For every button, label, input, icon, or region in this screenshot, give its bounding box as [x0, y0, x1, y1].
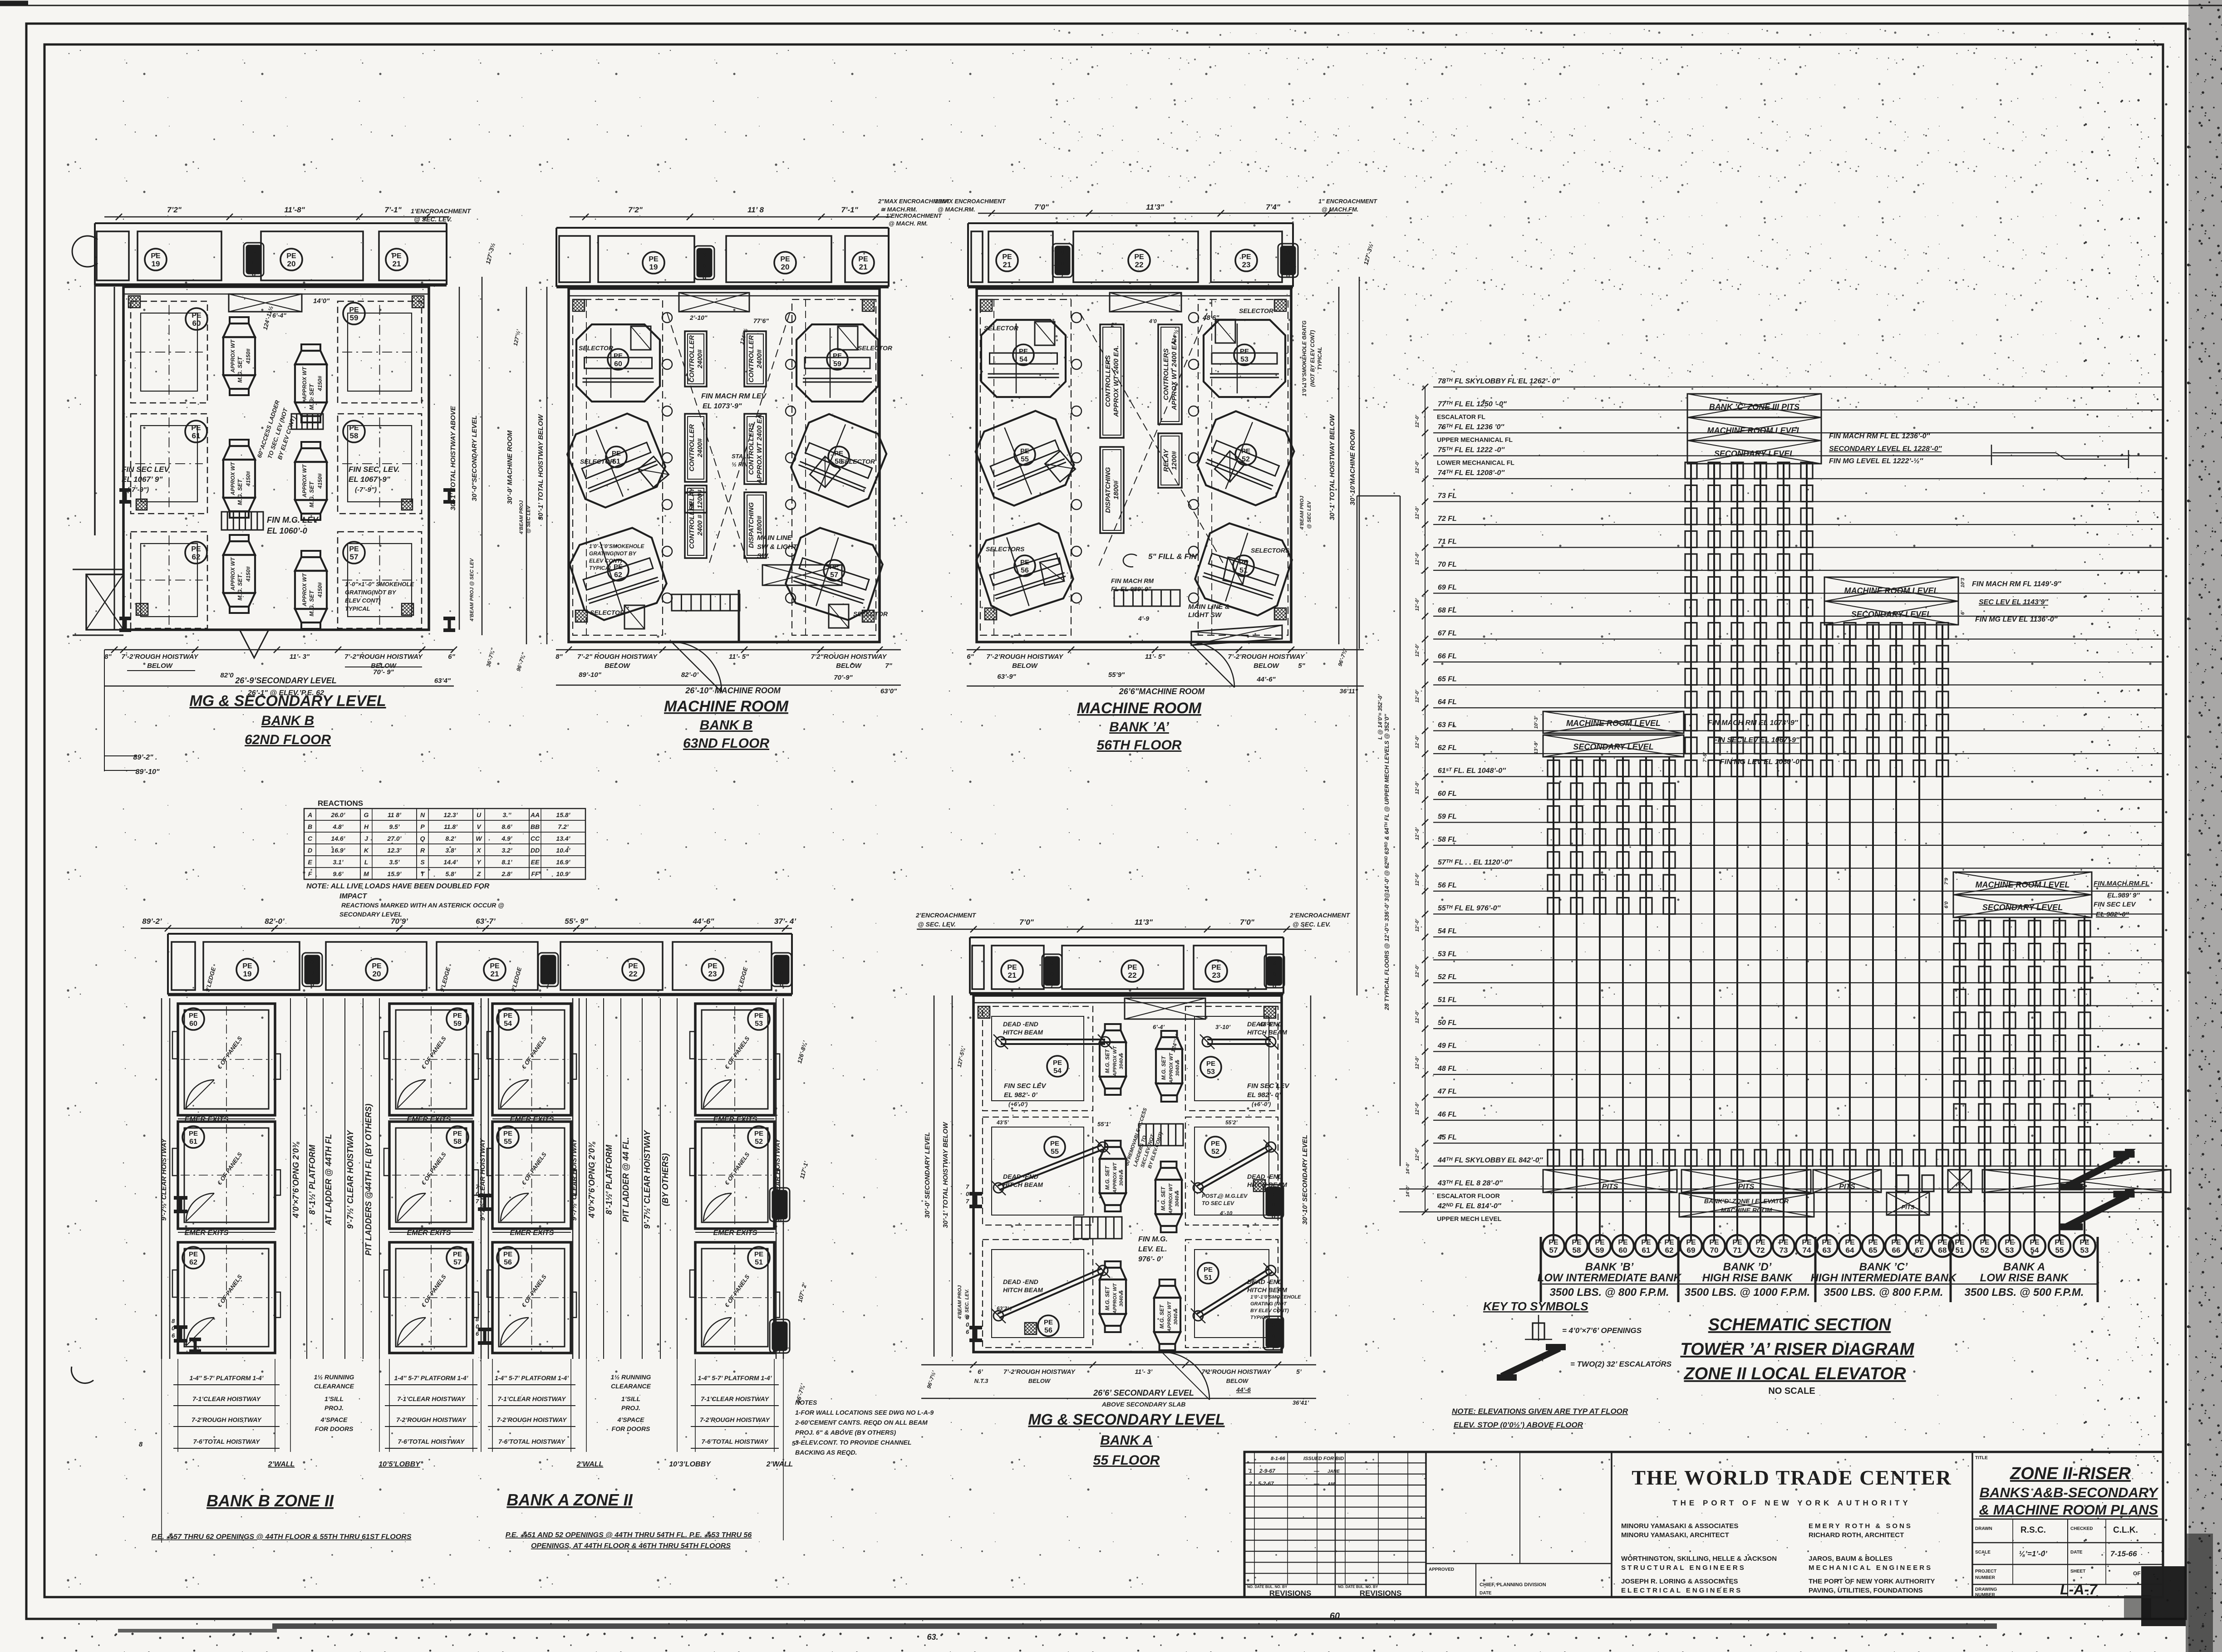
svg-text:PE: PE	[1868, 1239, 1878, 1246]
svg-text:1½ RUNNING: 1½ RUNNING	[314, 1373, 354, 1381]
svg-text:FIN MG LEVEL EL 1222’-½″: FIN MG LEVEL EL 1222’-½″	[1829, 457, 1923, 465]
svg-text:SELECTOR: SELECTOR	[858, 344, 893, 352]
svg-text:⅛’=1’-0’: ⅛’=1’-0’	[2019, 1549, 2047, 1558]
svg-text:EMER EXITS: EMER EXITS	[510, 1116, 554, 1123]
svg-text:PE: PE	[1020, 559, 1029, 566]
svg-text:DRAWING: DRAWING	[1975, 1587, 1997, 1592]
svg-text:4’-10: 4’-10	[1219, 1210, 1233, 1216]
svg-text:PE: PE	[1955, 1239, 1965, 1246]
svg-text:PE: PE	[191, 545, 201, 553]
svg-text:44ᵀᴴ FL SKYLOBBY EL 842’-0″: 44ᵀᴴ FL SKYLOBBY EL 842’-0″	[1437, 1157, 1544, 1164]
svg-text:68: 68	[1938, 1246, 1947, 1255]
svg-text:6’-4’: 6’-4’	[1153, 1024, 1165, 1030]
svg-text:PE: PE	[780, 255, 790, 263]
svg-text:HITCH BEAM: HITCH BEAM	[1003, 1286, 1043, 1294]
svg-text:7’-1": 7’-1"	[384, 206, 402, 214]
svg-text:55: 55	[504, 1138, 512, 1146]
svg-text:59: 59	[833, 360, 841, 368]
svg-text:73: 73	[1780, 1246, 1788, 1255]
svg-text:7-6’TOTAL HOISTWAY: 7-6’TOTAL HOISTWAY	[498, 1438, 565, 1445]
svg-text:PE: PE	[1618, 1239, 1628, 1246]
svg-text:4150#: 4150#	[245, 566, 251, 582]
svg-text:7’0": 7’0"	[1034, 203, 1049, 211]
svg-text:FIN MACH RM FL 1149’-9″: FIN MACH RM FL 1149’-9″	[1972, 580, 2062, 588]
svg-text:AT LADDER @ 44TH FL: AT LADDER @ 44TH FL	[324, 1134, 333, 1226]
svg-text:DISPATCHING: DISPATCHING	[1104, 467, 1112, 513]
svg-text:BANK A ZONE II: BANK A ZONE II	[506, 1490, 633, 1509]
svg-text:22: 22	[629, 970, 638, 978]
svg-text:65: 65	[1869, 1246, 1878, 1255]
svg-text:3.5’: 3.5’	[389, 858, 400, 866]
svg-text:7: 7	[1272, 1190, 1275, 1197]
svg-text:7’9: 7’9	[1944, 877, 1949, 885]
svg-text:SECONDARY LEVEL: SECONDARY LEVEL	[1573, 742, 1653, 751]
svg-text:56: 56	[1044, 1327, 1052, 1334]
svg-text:FIN MACH RM: FIN MACH RM	[1111, 577, 1154, 584]
svg-text:DEAD -END: DEAD -END	[1003, 1173, 1038, 1180]
svg-text:11’- 5": 11’- 5"	[1145, 653, 1165, 661]
svg-text:7-6’TOTAL HOISTWAY: 7-6’TOTAL HOISTWAY	[193, 1438, 261, 1445]
svg-text:W: W	[476, 835, 482, 842]
svg-text:52: 52	[755, 1138, 763, 1146]
svg-text:TO SEC LEV: TO SEC LEV	[1202, 1200, 1234, 1206]
svg-text:4’0’×7’6’OPNG 2’0⅜: 4’0’×7’6’OPNG 2’0⅜	[291, 1142, 300, 1219]
svg-text:64 FL: 64 FL	[1438, 698, 1457, 706]
svg-text:6’: 6’	[978, 1368, 983, 1375]
svg-text:ELEV. STOP (0’0½’) ABOVE FL: ELEV. STOP (0’0½’) ABOVE FLOOR	[1454, 1421, 1583, 1429]
svg-text:APPROX WT: APPROX WT	[301, 573, 308, 607]
svg-text:2’ENCROACHMENT: 2’ENCROACHMENT	[915, 912, 977, 919]
svg-text:0: 0	[1050, 971, 1054, 978]
svg-text:—: —	[1313, 1480, 1320, 1487]
svg-text:9’-7½’ CLEAR HOISTWAY: 9’-7½’ CLEAR HOISTWAY	[643, 1129, 652, 1229]
svg-text:PITS: PITS	[1602, 1183, 1618, 1191]
svg-text:8: 8	[1272, 1321, 1275, 1329]
svg-text:12’-0’: 12’-0’	[1415, 643, 1420, 657]
svg-text:M.G. SET: M.G. SET	[1104, 1165, 1111, 1190]
svg-text:64: 64	[1846, 1246, 1854, 1255]
svg-text:EMER EXITS: EMER EXITS	[407, 1116, 451, 1123]
svg-text:DEAD -END: DEAD -END	[1247, 1020, 1283, 1028]
svg-text:C.L.K.: C.L.K.	[2113, 1525, 2138, 1535]
svg-text:48 FL: 48 FL	[1437, 1065, 1457, 1073]
svg-text:SELECTOR: SELECTOR	[580, 458, 615, 465]
svg-text:68 FL: 68 FL	[1438, 607, 1457, 614]
svg-text:LOW INTERMEDIATE BANK: LOW INTERMEDIATE BANK	[1538, 1272, 1682, 1284]
svg-text:8.1’: 8.1’	[501, 858, 512, 866]
svg-text:7-6’TOTAL HOISTWAY: 7-6’TOTAL HOISTWAY	[702, 1438, 769, 1445]
svg-text:FIN SEC LEV: FIN SEC LEV	[122, 465, 170, 474]
svg-text:62ND FLOOR: 62ND FLOOR	[245, 732, 331, 747]
svg-text:7: 7	[1061, 271, 1064, 279]
svg-text:KEY TO SYMBOLS: KEY TO SYMBOLS	[1483, 1299, 1588, 1313]
svg-text:7.2’: 7.2’	[558, 823, 569, 830]
svg-text:R.S.C.: R.S.C.	[2020, 1525, 2046, 1535]
svg-text:PE: PE	[189, 1250, 198, 1258]
svg-text:BELOW: BELOW	[1028, 1377, 1051, 1384]
svg-text:@ SEC. LEV.: @ SEC. LEV.	[414, 216, 452, 223]
svg-text:89’-10": 89’-10"	[136, 768, 160, 776]
svg-text:PE: PE	[614, 563, 623, 571]
svg-text:TYPICAL: TYPICAL	[589, 565, 612, 571]
svg-text:21: 21	[1003, 260, 1012, 269]
svg-text:& MACHINE ROOM PLANS: & MACHINE ROOM PLANS	[1979, 1502, 2158, 1518]
svg-text:FIN M.G.: FIN M.G.	[1138, 1235, 1168, 1243]
svg-text:14’-0’: 14’-0’	[1406, 1162, 1411, 1174]
svg-text:PE: PE	[612, 450, 621, 457]
svg-text:4150#: 4150#	[245, 348, 251, 364]
svg-text:BELOW: BELOW	[836, 662, 862, 670]
svg-text:EL 1073’-9": EL 1073’-9"	[703, 402, 742, 410]
svg-text:HITCH BEAM: HITCH BEAM	[1003, 1029, 1043, 1036]
svg-text:PIT LADDERS @44TH FL (BY OTHER: PIT LADDERS @44TH FL (BY OTHERS)	[364, 1104, 373, 1256]
svg-text:PE: PE	[2005, 1239, 2015, 1246]
svg-text:5": 5"	[1298, 662, 1305, 670]
svg-text:PE: PE	[1053, 1059, 1062, 1067]
svg-text:43ᵀᴴ FL EL 8 28’-0″: 43ᵀᴴ FL EL 8 28’-0″	[1437, 1180, 1503, 1187]
svg-text:36’11": 36’11"	[1340, 687, 1358, 695]
svg-text:N: N	[420, 811, 425, 819]
svg-text:82’-0’: 82’-0’	[265, 917, 285, 926]
svg-text:APPROX WT: APPROX WT	[301, 366, 308, 400]
svg-text:Z: Z	[477, 870, 481, 877]
svg-text:MAIN LINE &: MAIN LINE &	[1188, 603, 1230, 611]
svg-text:19: 19	[243, 970, 252, 978]
svg-text:CONTROLLERS: CONTROLLERS	[1162, 348, 1170, 400]
svg-text:HIGH RISE BANK: HIGH RISE BANK	[1702, 1272, 1793, 1284]
svg-text:59 FL: 59 FL	[1438, 813, 1457, 821]
svg-text:M.G. SET: M.G. SET	[1160, 1055, 1167, 1080]
svg-text:PE: PE	[1241, 447, 1250, 455]
svg-text:FIN SEC. LEV.: FIN SEC. LEV.	[349, 465, 400, 474]
svg-text:77ᵀᴴ FL EL 1250 ’-0″: 77ᵀᴴ FL EL 1250 ’-0″	[1438, 401, 1507, 408]
svg-text:7-1’CLEAR HOISTWAY: 7-1’CLEAR HOISTWAY	[192, 1395, 261, 1402]
svg-text:PE: PE	[189, 1130, 198, 1137]
svg-text:PE: PE	[1204, 1266, 1213, 1274]
svg-text:ZONE II LOCAL ELEVATOR: ZONE II LOCAL ELEVATOR	[1683, 1364, 1906, 1383]
svg-text:1200#: 1200#	[1170, 451, 1178, 470]
svg-text:60 FL: 60 FL	[1438, 790, 1457, 798]
svg-text:3040⁂: 3040⁂	[1174, 1190, 1180, 1206]
svg-text:PE: PE	[1914, 1239, 1924, 1246]
svg-text:53: 53	[1240, 356, 1249, 363]
svg-text:EL 982’-0″: EL 982’-0″	[2096, 911, 2129, 918]
svg-text:CC: CC	[531, 835, 540, 842]
svg-text:30’-1’ TOTAL HOISTWAY BELOW: 30’-1’ TOTAL HOISTWAY BELOW	[942, 1122, 949, 1228]
svg-text:0: 0	[778, 1336, 782, 1343]
svg-text:59: 59	[453, 1020, 462, 1028]
svg-text:22: 22	[1135, 260, 1144, 269]
svg-text:57: 57	[453, 1259, 462, 1266]
svg-text:AA: AA	[530, 811, 540, 819]
svg-text:7’-2’ROUGH HOISTWAY: 7’-2’ROUGH HOISTWAY	[1228, 653, 1306, 661]
svg-text:CONTROLLER: CONTROLLER	[688, 335, 696, 382]
svg-text:61ˢᵀ FL. EL 1048’-0″: 61ˢᵀ FL. EL 1048’-0″	[1438, 767, 1506, 775]
svg-text:63’-9": 63’-9"	[997, 673, 1016, 681]
svg-text:PE: PE	[392, 252, 402, 260]
svg-text:30’-1’ TOTAL HOISTWAY ABOVE: 30’-1’ TOTAL HOISTWAY ABOVE	[449, 406, 457, 510]
svg-text:EMER EXITS: EMER EXITS	[407, 1229, 451, 1237]
svg-text:7’2": 7’2"	[167, 206, 182, 214]
svg-text:4’BEAM PROJ: 4’BEAM PROJ	[519, 500, 524, 534]
svg-text:PE: PE	[1127, 964, 1137, 971]
svg-text:6: 6	[172, 1332, 175, 1339]
svg-text:49 FL: 49 FL	[1437, 1042, 1457, 1050]
svg-text:53: 53	[2080, 1246, 2089, 1255]
svg-text:BANK ’B’: BANK ’B’	[1585, 1261, 1634, 1273]
svg-text:30’-1’ TOTAL HOISTWAY BELOW: 30’-1’ TOTAL HOISTWAY BELOW	[1328, 414, 1336, 520]
svg-text:13.4’: 13.4’	[556, 835, 570, 842]
svg-text:G: G	[364, 811, 369, 819]
svg-text:1½ RUNNING: 1½ RUNNING	[611, 1373, 651, 1381]
svg-text:78ᵀᴴ FL SKYLOBBY FL EL 1262’: 78ᵀᴴ FL SKYLOBBY FL EL 1262’- 0″	[1438, 377, 1560, 385]
svg-text:72 FL: 72 FL	[1438, 515, 1457, 523]
svg-text:4150#: 4150#	[245, 471, 251, 487]
svg-text:27.0’: 27.0’	[387, 835, 402, 842]
svg-text:NO SCALE: NO SCALE	[1768, 1386, 1815, 1396]
svg-text:TYPICAL: TYPICAL	[1317, 347, 1323, 370]
svg-text:BANK B: BANK B	[261, 713, 315, 728]
svg-text:HITCH BEAM: HITCH BEAM	[1247, 1286, 1287, 1294]
svg-text:8.2’: 8.2’	[445, 835, 456, 842]
svg-text:26’6’ SECONDARY LEVEL: 26’6’ SECONDARY LEVEL	[1093, 1388, 1194, 1397]
svg-text:9’-7½’ CLEAR HOISTWAY: 9’-7½’ CLEAR HOISTWAY	[570, 1138, 578, 1221]
svg-text:1: 1	[1249, 1468, 1252, 1474]
svg-text:43’5’: 43’5’	[996, 1119, 1009, 1126]
svg-text:2400#: 2400#	[756, 349, 763, 368]
svg-text:CLEARANCE: CLEARANCE	[611, 1382, 651, 1390]
svg-text:CONTROLLERS: CONTROLLERS	[747, 423, 755, 475]
svg-text:PE: PE	[628, 962, 638, 970]
svg-text:12’-0’: 12’-0’	[1415, 964, 1420, 977]
svg-text:APPROX WT 2400 EA.: APPROX WT 2400 EA.	[1170, 338, 1178, 411]
svg-text:7-2’ROUGH HOISTWAY: 7-2’ROUGH HOISTWAY	[700, 1416, 770, 1423]
svg-text:16.9’: 16.9’	[331, 847, 345, 854]
svg-text:MACHINE ROOM LEVEL: MACHINE ROOM LEVEL	[1707, 426, 1801, 435]
svg-text:ABOVE SECONDARY SLAB: ABOVE SECONDARY SLAB	[1101, 1401, 1186, 1408]
svg-text:—: —	[1313, 1468, 1320, 1474]
svg-text:7-15-66: 7-15-66	[2110, 1549, 2137, 1558]
svg-text:2’ENCROACHMENT: 2’ENCROACHMENT	[1289, 912, 1351, 919]
svg-text:PE: PE	[1822, 1239, 1832, 1246]
svg-text:LIGHT SW: LIGHT SW	[1188, 611, 1222, 619]
svg-text:52: 52	[1981, 1246, 1989, 1255]
svg-text:53: 53	[755, 1020, 763, 1028]
svg-text:PE: PE	[708, 962, 718, 970]
svg-text:10.9’: 10.9’	[556, 870, 570, 877]
svg-text:1’0’-1’0’SMOKEHOLE: 1’0’-1’0’SMOKEHOLE	[589, 543, 644, 549]
svg-text:2400 #: 2400 #	[696, 515, 704, 536]
svg-text:BELOW: BELOW	[1012, 662, 1038, 670]
svg-text:PE: PE	[1891, 1239, 1901, 1246]
svg-text:CONTROLLER: CONTROLLER	[688, 424, 696, 471]
svg-text:11’3": 11’3"	[1135, 918, 1153, 926]
svg-text:PE: PE	[2030, 1239, 2040, 1246]
svg-text:13’-9’: 13’-9’	[1534, 741, 1539, 754]
svg-text:SELECTOR: SELECTOR	[841, 458, 875, 465]
svg-text:PROJECT: PROJECT	[1975, 1569, 1996, 1574]
svg-text:PE: PE	[1845, 1239, 1855, 1246]
svg-text:14.4’: 14.4’	[443, 858, 458, 866]
svg-text:12’-0’: 12’-0’	[1415, 781, 1420, 794]
svg-text:EE: EE	[531, 858, 540, 866]
svg-text:FIN SEC LEV: FIN SEC LEV	[1247, 1082, 1290, 1090]
svg-text:PE: PE	[1050, 1140, 1059, 1147]
svg-text:11.8’: 11.8’	[444, 823, 458, 830]
svg-text:BELOW: BELOW	[147, 662, 173, 670]
svg-text:58 FL: 58 FL	[1438, 836, 1457, 843]
svg-text:55’2’: 55’2’	[1225, 1119, 1238, 1126]
svg-text:SECONDARY LEVEL: SECONDARY LEVEL	[1714, 449, 1794, 458]
svg-text:0: 0	[252, 259, 256, 267]
svg-text:2’-10": 2’-10"	[689, 314, 708, 321]
svg-text:PE: PE	[1572, 1239, 1582, 1246]
svg-text:LEV. EL.: LEV. EL.	[1138, 1245, 1167, 1253]
svg-text:DATE: DATE	[1480, 1591, 1492, 1596]
svg-text:MAIN LINE: MAIN LINE	[757, 534, 792, 542]
svg-text:7: 7	[966, 1198, 969, 1205]
svg-text:APPROX WT 2400 EA: APPROX WT 2400 EA	[756, 414, 763, 484]
svg-text:7": 7"	[885, 662, 892, 670]
svg-text:SECONDARY LEVEL EL 1228’-0″: SECONDARY LEVEL EL 1228’-0″	[1829, 445, 1942, 453]
svg-text:APPROX WT: APPROX WT	[230, 461, 236, 495]
svg-text:1’ENCROACHMENT: 1’ENCROACHMENT	[886, 212, 942, 219]
svg-text:26.0’: 26.0’	[330, 811, 345, 819]
svg-text:1-4″ 5-7’ PLATFORM 1-4’: 1-4″ 5-7’ PLATFORM 1-4’	[394, 1374, 468, 1382]
svg-text:EMER EXITS: EMER EXITS	[713, 1229, 757, 1237]
svg-text:2’WALL: 2’WALL	[576, 1461, 604, 1468]
svg-text:3.2’: 3.2’	[501, 847, 512, 854]
svg-text:MG & SECONDARY LEVEL: MG & SECONDARY LEVEL	[189, 692, 386, 710]
svg-text:ESCALATOR FL: ESCALATOR FL	[1437, 413, 1485, 421]
svg-text:PE: PE	[1709, 1239, 1719, 1246]
svg-text:47 FL: 47 FL	[1437, 1088, 1457, 1096]
svg-text:APPROX WT: APPROX WT	[1112, 1045, 1118, 1077]
svg-text:6: 6	[1286, 249, 1290, 256]
svg-text:0: 0	[966, 1321, 969, 1328]
svg-text:SCALE: SCALE	[1975, 1550, 1991, 1555]
svg-text:PE: PE	[490, 962, 500, 970]
svg-text:PROJ.: PROJ.	[621, 1404, 640, 1412]
svg-text:M.G. SET: M.G. SET	[1104, 1286, 1111, 1310]
svg-text:12’-0’: 12’-0’	[1415, 1056, 1420, 1069]
svg-text:51: 51	[755, 1259, 763, 1266]
svg-text:M.G. SET: M.G. SET	[1160, 1186, 1166, 1211]
svg-text:7-1’CLEAR HOISTWAY: 7-1’CLEAR HOISTWAY	[701, 1395, 770, 1402]
svg-text:PE: PE	[349, 424, 359, 432]
svg-text:2’WALL: 2’WALL	[766, 1461, 793, 1468]
svg-text:42ᴺᴰ FL EL 814’-0″: 42ᴺᴰ FL EL 814’-0″	[1437, 1202, 1502, 1210]
svg-text:@ MACH.FM.: @ MACH.FM.	[1322, 206, 1358, 213]
svg-text:3500 LBS. @ 800 F.P.M.: 3500 LBS. @ 800 F.P.M.	[1824, 1286, 1943, 1299]
svg-text:7-2’ROUGH HOISTWAY: 7-2’ROUGH HOISTWAY	[497, 1416, 567, 1423]
svg-text:FIN SEC LEV: FIN SEC LEV	[1004, 1082, 1047, 1090]
svg-text:THE PORT OF NEW YORK AUTHORITY: THE PORT OF NEW YORK AUTHORITY	[1809, 1578, 1935, 1585]
svg-text:8: 8	[778, 1216, 782, 1223]
svg-text:BANK A: BANK A	[1100, 1433, 1153, 1448]
svg-text:DISPATCHING: DISPATCHING	[747, 502, 755, 548]
svg-text:36’41’: 36’41’	[1293, 1399, 1309, 1406]
svg-text:P.E. ⁂51 AND 52 OPENINGS @ 44: P.E. ⁂51 AND 52 OPENINGS @ 44TH THRU 54T…	[506, 1531, 752, 1539]
svg-text:3040⁂: 3040⁂	[1175, 1059, 1180, 1076]
svg-text:APPROX WT: APPROX WT	[301, 464, 308, 498]
svg-text:BELOW: BELOW	[1254, 662, 1280, 670]
svg-text:23: 23	[708, 970, 717, 978]
svg-text:21: 21	[393, 260, 401, 268]
svg-text:JAROS, BAUM & BOLLES: JAROS, BAUM & BOLLES	[1809, 1555, 1893, 1563]
svg-text:FL EL 989’-9": FL EL 989’-9"	[1111, 585, 1151, 593]
svg-text:PE: PE	[1211, 964, 1221, 971]
svg-text:8: 8	[139, 1441, 143, 1448]
svg-text:MACHINE ROOM: MACHINE ROOM	[1077, 700, 1202, 717]
svg-text:8: 8	[172, 1318, 175, 1324]
svg-text:3.8’: 3.8’	[445, 847, 456, 854]
svg-text:6: 6	[780, 958, 783, 966]
svg-text:0: 0	[476, 1323, 479, 1330]
svg-text:CHIEF, PLANNING DIVISION: CHIEF, PLANNING DIVISION	[1480, 1582, 1546, 1588]
svg-text:EL 1067’-9": EL 1067’-9"	[349, 475, 391, 484]
svg-text:6: 6	[966, 1328, 969, 1335]
svg-text:PE: PE	[1206, 1060, 1215, 1068]
svg-text:8’-1½’ PLATFORM: 8’-1½’ PLATFORM	[605, 1144, 614, 1215]
svg-text:PE: PE	[503, 1250, 512, 1258]
svg-text:52 FL: 52 FL	[1438, 973, 1457, 981]
svg-text:0: 0	[1272, 1333, 1275, 1340]
svg-text:75ᵀᴴ FL EL 1222 -0″: 75ᵀᴴ FL EL 1222 -0″	[1438, 446, 1505, 454]
svg-text:7-1’CLEAR HOISTWAY: 7-1’CLEAR HOISTWAY	[397, 1395, 466, 1402]
svg-text:8: 8	[1272, 1212, 1275, 1220]
svg-text:11’- 5": 11’- 5"	[729, 653, 749, 661]
svg-text:U: U	[477, 811, 482, 819]
svg-text:MECHANICAL ENGINEERS: MECHANICAL ENGINEERS	[1809, 1564, 1932, 1572]
svg-text:MACHINE ROOM LEVEL: MACHINE ROOM LEVEL	[1566, 719, 1661, 728]
svg-text:@ MACH. RM.: @ MACH. RM.	[889, 220, 928, 227]
svg-text:67 FL: 67 FL	[1438, 630, 1457, 637]
svg-text:APPROX WT: APPROX WT	[1112, 1162, 1118, 1193]
svg-text:NUMBER: NUMBER	[1975, 1575, 1996, 1580]
svg-text:0: 0	[780, 969, 783, 977]
svg-text:PE: PE	[1686, 1239, 1696, 1246]
svg-text:3500 LBS. @ 500 F.P.M.: 3500 LBS. @ 500 F.P.M.	[1964, 1286, 2084, 1299]
svg-text:60: 60	[1619, 1246, 1627, 1255]
svg-text:3040⁂: 3040⁂	[1118, 1169, 1124, 1186]
svg-text:7: 7	[966, 1183, 969, 1190]
svg-text:19: 19	[152, 260, 160, 268]
svg-text:ELECTRICAL ENGINEERS: ELECTRICAL ENGINEERS	[1621, 1587, 1742, 1594]
svg-text:67: 67	[1915, 1246, 1924, 1255]
svg-text:61: 61	[1642, 1246, 1651, 1255]
svg-text:89’-2’: 89’-2’	[142, 917, 162, 926]
svg-text:CONTROLLERS: CONTROLLERS	[1104, 355, 1112, 407]
svg-text:58: 58	[453, 1138, 462, 1146]
svg-text:PE: PE	[2055, 1239, 2065, 1246]
svg-text:37’- 4’: 37’- 4’	[774, 917, 796, 926]
svg-text:6: 6	[252, 270, 256, 278]
svg-text:SELECTOR: SELECTOR	[853, 610, 888, 618]
svg-text:50 FL: 50 FL	[1438, 1019, 1457, 1027]
svg-text:0: 0	[778, 1204, 782, 1212]
svg-text:7-1’CLEAR HOISTWAY: 7-1’CLEAR HOISTWAY	[498, 1395, 567, 1402]
svg-text:7: 7	[778, 1347, 782, 1355]
svg-text:L-A-7: L-A-7	[2060, 1581, 2098, 1598]
svg-text:56 FL: 56 FL	[1438, 882, 1457, 889]
svg-text:11’- 3": 11’- 3"	[290, 653, 310, 661]
svg-text:20: 20	[287, 260, 296, 268]
svg-text:7: 7	[1272, 1344, 1275, 1352]
svg-text:UPPER MECH LEVEL: UPPER MECH LEVEL	[1437, 1215, 1502, 1222]
svg-text:B: B	[308, 823, 312, 830]
svg-text:IMPACT: IMPACT	[339, 892, 367, 900]
